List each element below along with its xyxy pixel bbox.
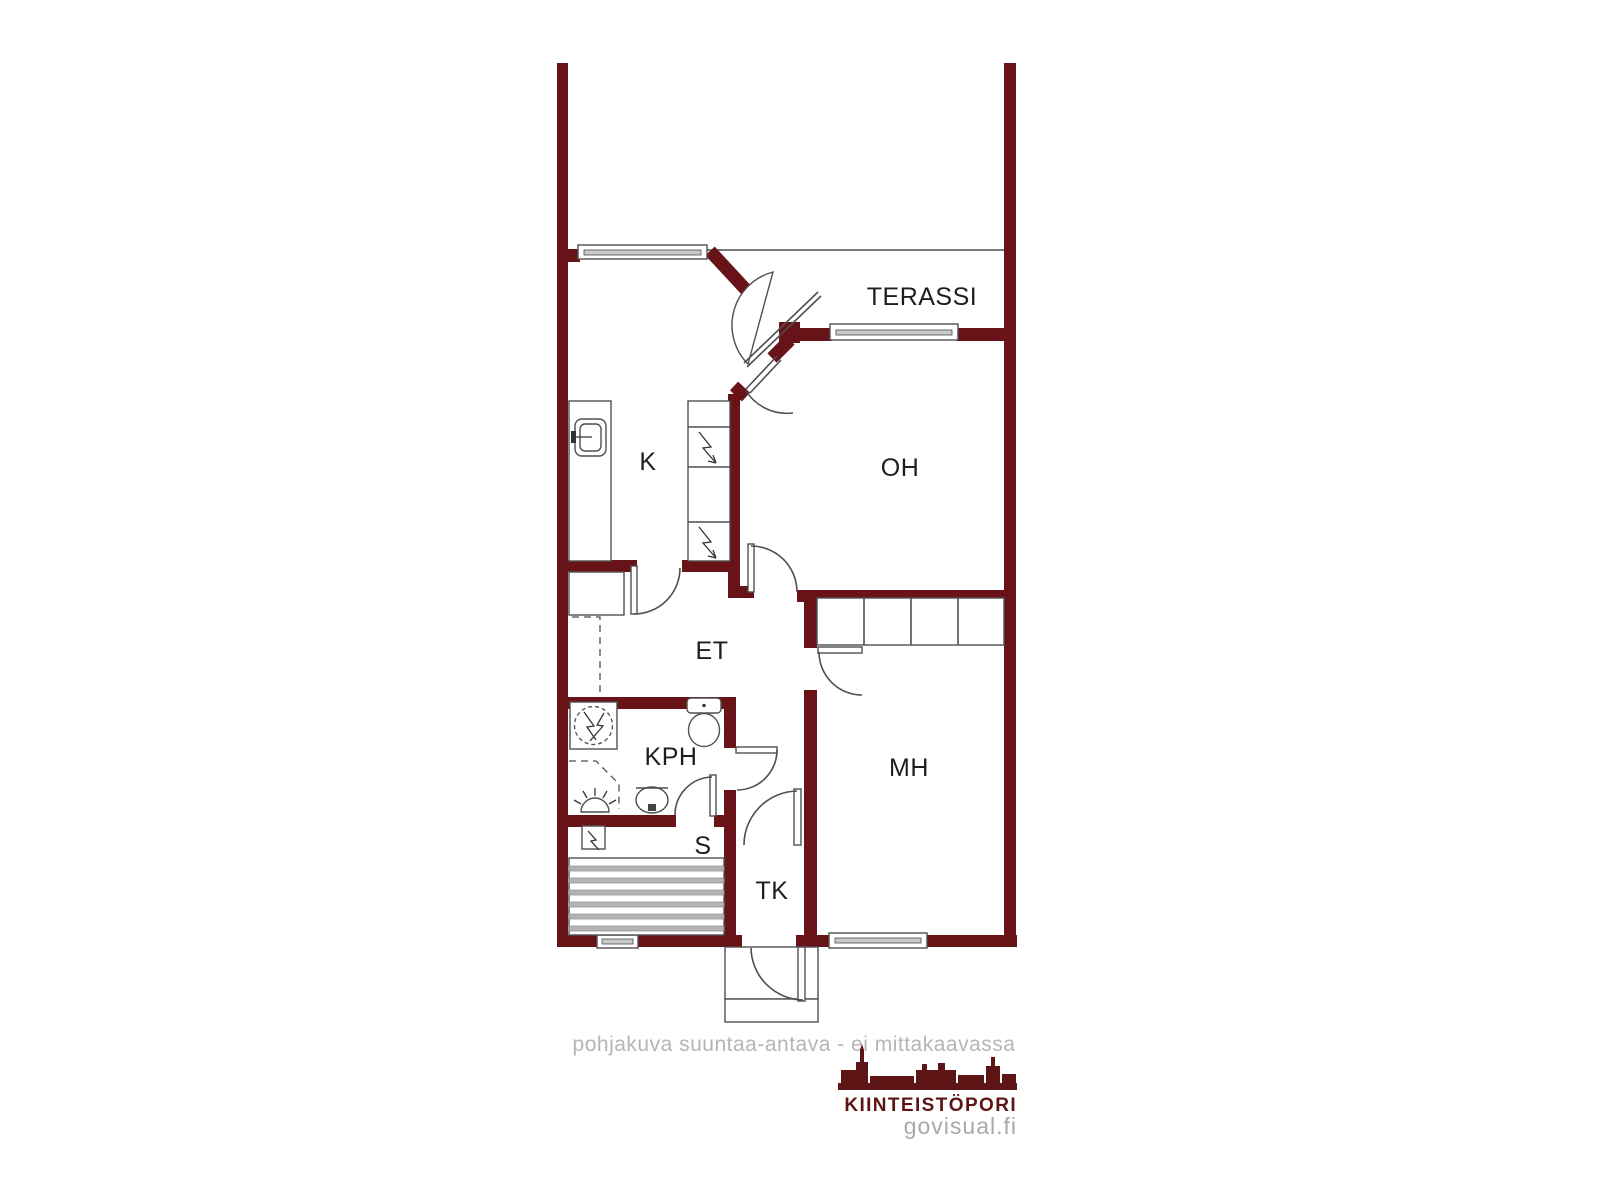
disclaimer-text: pohjakuva suuntaa-antava - ei mittakaava… — [573, 1033, 1016, 1056]
wall-right — [1004, 63, 1016, 947]
appliance-reservation-outline — [572, 617, 600, 695]
window-livingroom-terrace — [830, 324, 958, 340]
wall-mh-left-lower — [804, 690, 817, 936]
wall-bottom-2 — [637, 935, 742, 947]
floor-plan-canvas: TERASSI K OH ET KPH MH S TK pohjakuva su… — [0, 0, 1600, 1200]
wall-kph-s-divider-right — [714, 815, 736, 827]
kitchen-hall-door — [631, 566, 680, 614]
room-label-kph: KPH — [645, 743, 698, 771]
hall-closet — [569, 572, 624, 615]
wall-kph-right-lower — [724, 790, 736, 936]
floor-plan-page: TERASSI K OH ET KPH MH S TK pohjakuva su… — [0, 0, 1600, 1200]
room-label-k: K — [639, 448, 656, 476]
brand-site: govisual.fi — [904, 1113, 1017, 1139]
floor-drain-lamp-icon — [574, 788, 616, 812]
room-label-terassi: TERASSI — [867, 283, 977, 311]
walls — [557, 63, 1017, 947]
sauna-benches — [569, 858, 724, 935]
bedroom-closets — [817, 598, 1004, 645]
room-label-s: S — [694, 832, 711, 860]
wall-kitchen-bottom-left — [557, 560, 637, 572]
room-label-tk: TK — [756, 877, 789, 905]
livingroom-door — [748, 544, 797, 592]
wall-window-nub — [557, 249, 580, 262]
wall-mh-left-upper — [804, 602, 817, 648]
wall-kitchen-bottom-right — [682, 560, 728, 572]
wall-diagonal-terrace-right — [772, 340, 790, 358]
wall-bottom-3 — [796, 935, 832, 947]
toilet-icon — [687, 698, 721, 747]
kitchen-appliance-column — [688, 401, 730, 561]
wall-oh-top-right — [956, 328, 1004, 341]
room-label-oh: OH — [881, 454, 920, 482]
wall-kph-right-upper — [724, 709, 736, 748]
wall-bottom-4 — [925, 935, 1017, 947]
kitchen-sink-icon — [571, 419, 606, 456]
porch-step-lower — [725, 999, 818, 1022]
washbasin-icon — [636, 787, 668, 813]
washing-machine-icon — [570, 702, 617, 749]
sauna-heater-icon — [582, 826, 605, 850]
vestibule-inner-door — [744, 789, 801, 845]
wall-diagonal-terrace-left — [710, 251, 749, 293]
wall-oh-top-left — [780, 328, 832, 341]
window-kitchen-top — [578, 245, 707, 259]
hall-fixtures — [569, 572, 624, 695]
room-label-mh: MH — [889, 754, 929, 782]
wall-bottom-1 — [557, 935, 598, 947]
footer: pohjakuva suuntaa-antava - ei mittakaava… — [573, 1033, 1017, 1139]
sauna-door — [675, 775, 716, 816]
bathroom-door — [736, 747, 777, 790]
bedroom-door — [818, 647, 862, 695]
window-bedroom — [829, 933, 927, 948]
wall-left — [557, 63, 568, 947]
wall-kph-s-divider-left — [557, 815, 676, 827]
window-sauna — [597, 935, 638, 948]
hall-terrace-door — [746, 356, 793, 413]
room-label-et: ET — [696, 637, 729, 665]
kitchen-fixtures — [569, 401, 730, 561]
